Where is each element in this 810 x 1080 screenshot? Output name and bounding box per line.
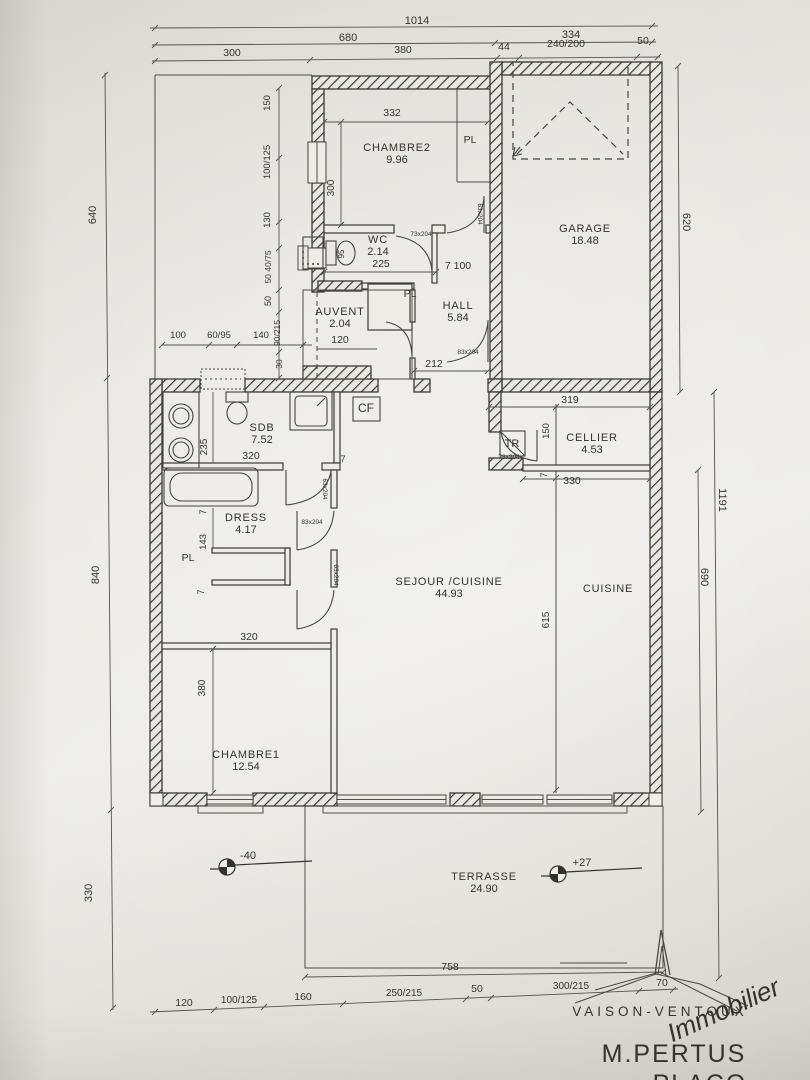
room-name: WC xyxy=(368,234,388,246)
room-name: CELLIER xyxy=(566,432,617,444)
dimension-label: 150 xyxy=(262,95,273,111)
dimension-label: 640 xyxy=(87,206,99,224)
dimension-label: 100/125 xyxy=(221,995,258,1006)
door-size-tag: 73x204 xyxy=(410,231,432,238)
dimension-label: 235 xyxy=(199,438,210,455)
dimension-label: 50 40/75 xyxy=(263,250,273,283)
room-name: GARAGE xyxy=(559,223,611,235)
client-name-line2: PLACO xyxy=(653,1070,748,1080)
room-name: SEJOUR /CUISINE xyxy=(395,576,502,588)
dimension-label: 30 xyxy=(274,359,284,369)
dimension-label: 7 xyxy=(340,454,345,464)
floorplan-photo: VAISON-VENTOUX Immobilier M.PERTUS PLACO… xyxy=(0,0,810,1080)
dimension-label: 1191 xyxy=(716,488,728,512)
dimension-label: 330 xyxy=(563,475,581,487)
room-area: 9.96 xyxy=(386,154,407,166)
dimension-label: 690 xyxy=(698,568,710,586)
dimension-label: 100 xyxy=(170,330,186,341)
dimension-label: 240/200 xyxy=(547,38,585,50)
dimension-lines xyxy=(102,23,722,1015)
dimension-label: 758 xyxy=(441,961,459,973)
dimension-label: 50 xyxy=(637,35,649,47)
dimension-label: 615 xyxy=(541,611,552,628)
door-size-tag: 73x204 xyxy=(498,454,520,461)
bathtub xyxy=(164,468,258,506)
shower xyxy=(290,392,332,430)
dimension-label: 130 xyxy=(262,212,273,228)
room-area: 5.84 xyxy=(447,312,468,324)
dimension-label: 120 xyxy=(331,334,349,346)
dimension-label: 140 xyxy=(253,330,269,341)
room-name: DRESS xyxy=(225,512,267,524)
dimension-label: 7 100 xyxy=(445,260,471,272)
room-name: CUISINE xyxy=(583,583,633,595)
dimension-label: 330 xyxy=(83,884,95,902)
room-area: 2.04 xyxy=(329,318,350,330)
garage-door xyxy=(513,62,628,159)
dimension-label: 319 xyxy=(561,394,579,406)
annotation-label: PL xyxy=(182,552,195,564)
room-area: 24.90 xyxy=(470,883,498,895)
dimension-label: 320 xyxy=(242,450,260,462)
dimension-label: 150 xyxy=(541,423,552,439)
dimension-label: 70 xyxy=(656,977,668,989)
room-labels: CHAMBRE29.96GARAGE18.48WC2.14AUVENT2.04H… xyxy=(212,142,633,895)
dimension-label: 7 xyxy=(198,509,208,514)
floorplan-drawing: VAISON-VENTOUX Immobilier M.PERTUS PLACO… xyxy=(0,0,810,1080)
dimension-label: 212 xyxy=(425,358,443,370)
dimension-label: 90/215 xyxy=(272,320,282,346)
room-area: 18.48 xyxy=(571,235,599,247)
dimension-label: 60/95 xyxy=(207,330,231,341)
room-area: 4.53 xyxy=(581,444,602,456)
vanity-double-sink xyxy=(163,392,199,468)
dimension-label: 120 xyxy=(175,997,193,1009)
door-size-tag: 63x204 xyxy=(476,203,483,225)
dimension-label: 1014 xyxy=(405,15,429,27)
level-value-label: -40 xyxy=(240,850,256,862)
dimension-label: 320 xyxy=(240,631,258,643)
level-marker-terrace-high xyxy=(541,866,642,882)
door-size-tag: 83x204 xyxy=(301,519,323,526)
annotation-label: CF xyxy=(358,401,374,415)
dimension-label: 50 xyxy=(471,983,483,995)
room-area: 4.17 xyxy=(235,524,256,536)
dimension-label: 7 xyxy=(539,472,549,477)
dimension-label: 160 xyxy=(294,991,312,1003)
dimension-label: 840 xyxy=(90,566,102,584)
dimension-label: 50 xyxy=(263,296,273,306)
room-area: 12.54 xyxy=(232,761,260,773)
dimension-label: 300 xyxy=(223,47,241,59)
dimension-label: 380 xyxy=(394,44,412,56)
door-size-tag: 83x204 xyxy=(457,349,479,356)
dimension-label: 300/215 xyxy=(553,981,590,992)
dimension-label: 332 xyxy=(383,107,401,119)
room-name: CHAMBRE2 xyxy=(363,142,431,154)
room-area: 44.93 xyxy=(435,588,463,600)
annotation-label: 95 xyxy=(337,249,346,258)
annotation-label: TR xyxy=(505,438,520,450)
level-value-label: +27 xyxy=(573,857,592,869)
room-area: 7.52 xyxy=(251,434,272,446)
dimension-label: 620 xyxy=(680,213,692,231)
client-name: M.PERTUS xyxy=(602,1040,747,1068)
dimension-label: 7 xyxy=(196,589,206,594)
room-name: SDB xyxy=(249,422,274,434)
room-area: 2.14 xyxy=(367,246,388,258)
dimension-label: 300 xyxy=(326,179,337,196)
door-size-tag: 63x204 xyxy=(332,564,339,586)
annotation-label: PL xyxy=(404,288,417,300)
agency-logo: VAISON-VENTOUX Immobilier M.PERTUS PLACO xyxy=(560,930,785,1080)
dimension-label: 250/215 xyxy=(386,988,423,999)
room-name: TERRASSE xyxy=(451,871,517,883)
toilet-sdb xyxy=(226,392,248,424)
dimension-label: 44 xyxy=(498,41,510,53)
dimension-label: 680 xyxy=(339,32,357,44)
level-marker-terrace-low xyxy=(210,859,312,875)
door-size-tag: 63x204 xyxy=(321,478,328,500)
level-labels: -40+27 xyxy=(240,850,591,869)
dimension-label: 380 xyxy=(197,679,208,696)
dimension-label: 225 xyxy=(372,258,390,270)
annotation-label: PL xyxy=(464,134,477,146)
dimension-label: 143 xyxy=(198,534,209,550)
doormat xyxy=(201,369,245,389)
room-name: CHAMBRE1 xyxy=(212,749,280,761)
room-name: HALL xyxy=(443,300,474,312)
dimension-label: 100/125 xyxy=(262,145,273,179)
room-name: AUVENT xyxy=(315,306,364,318)
